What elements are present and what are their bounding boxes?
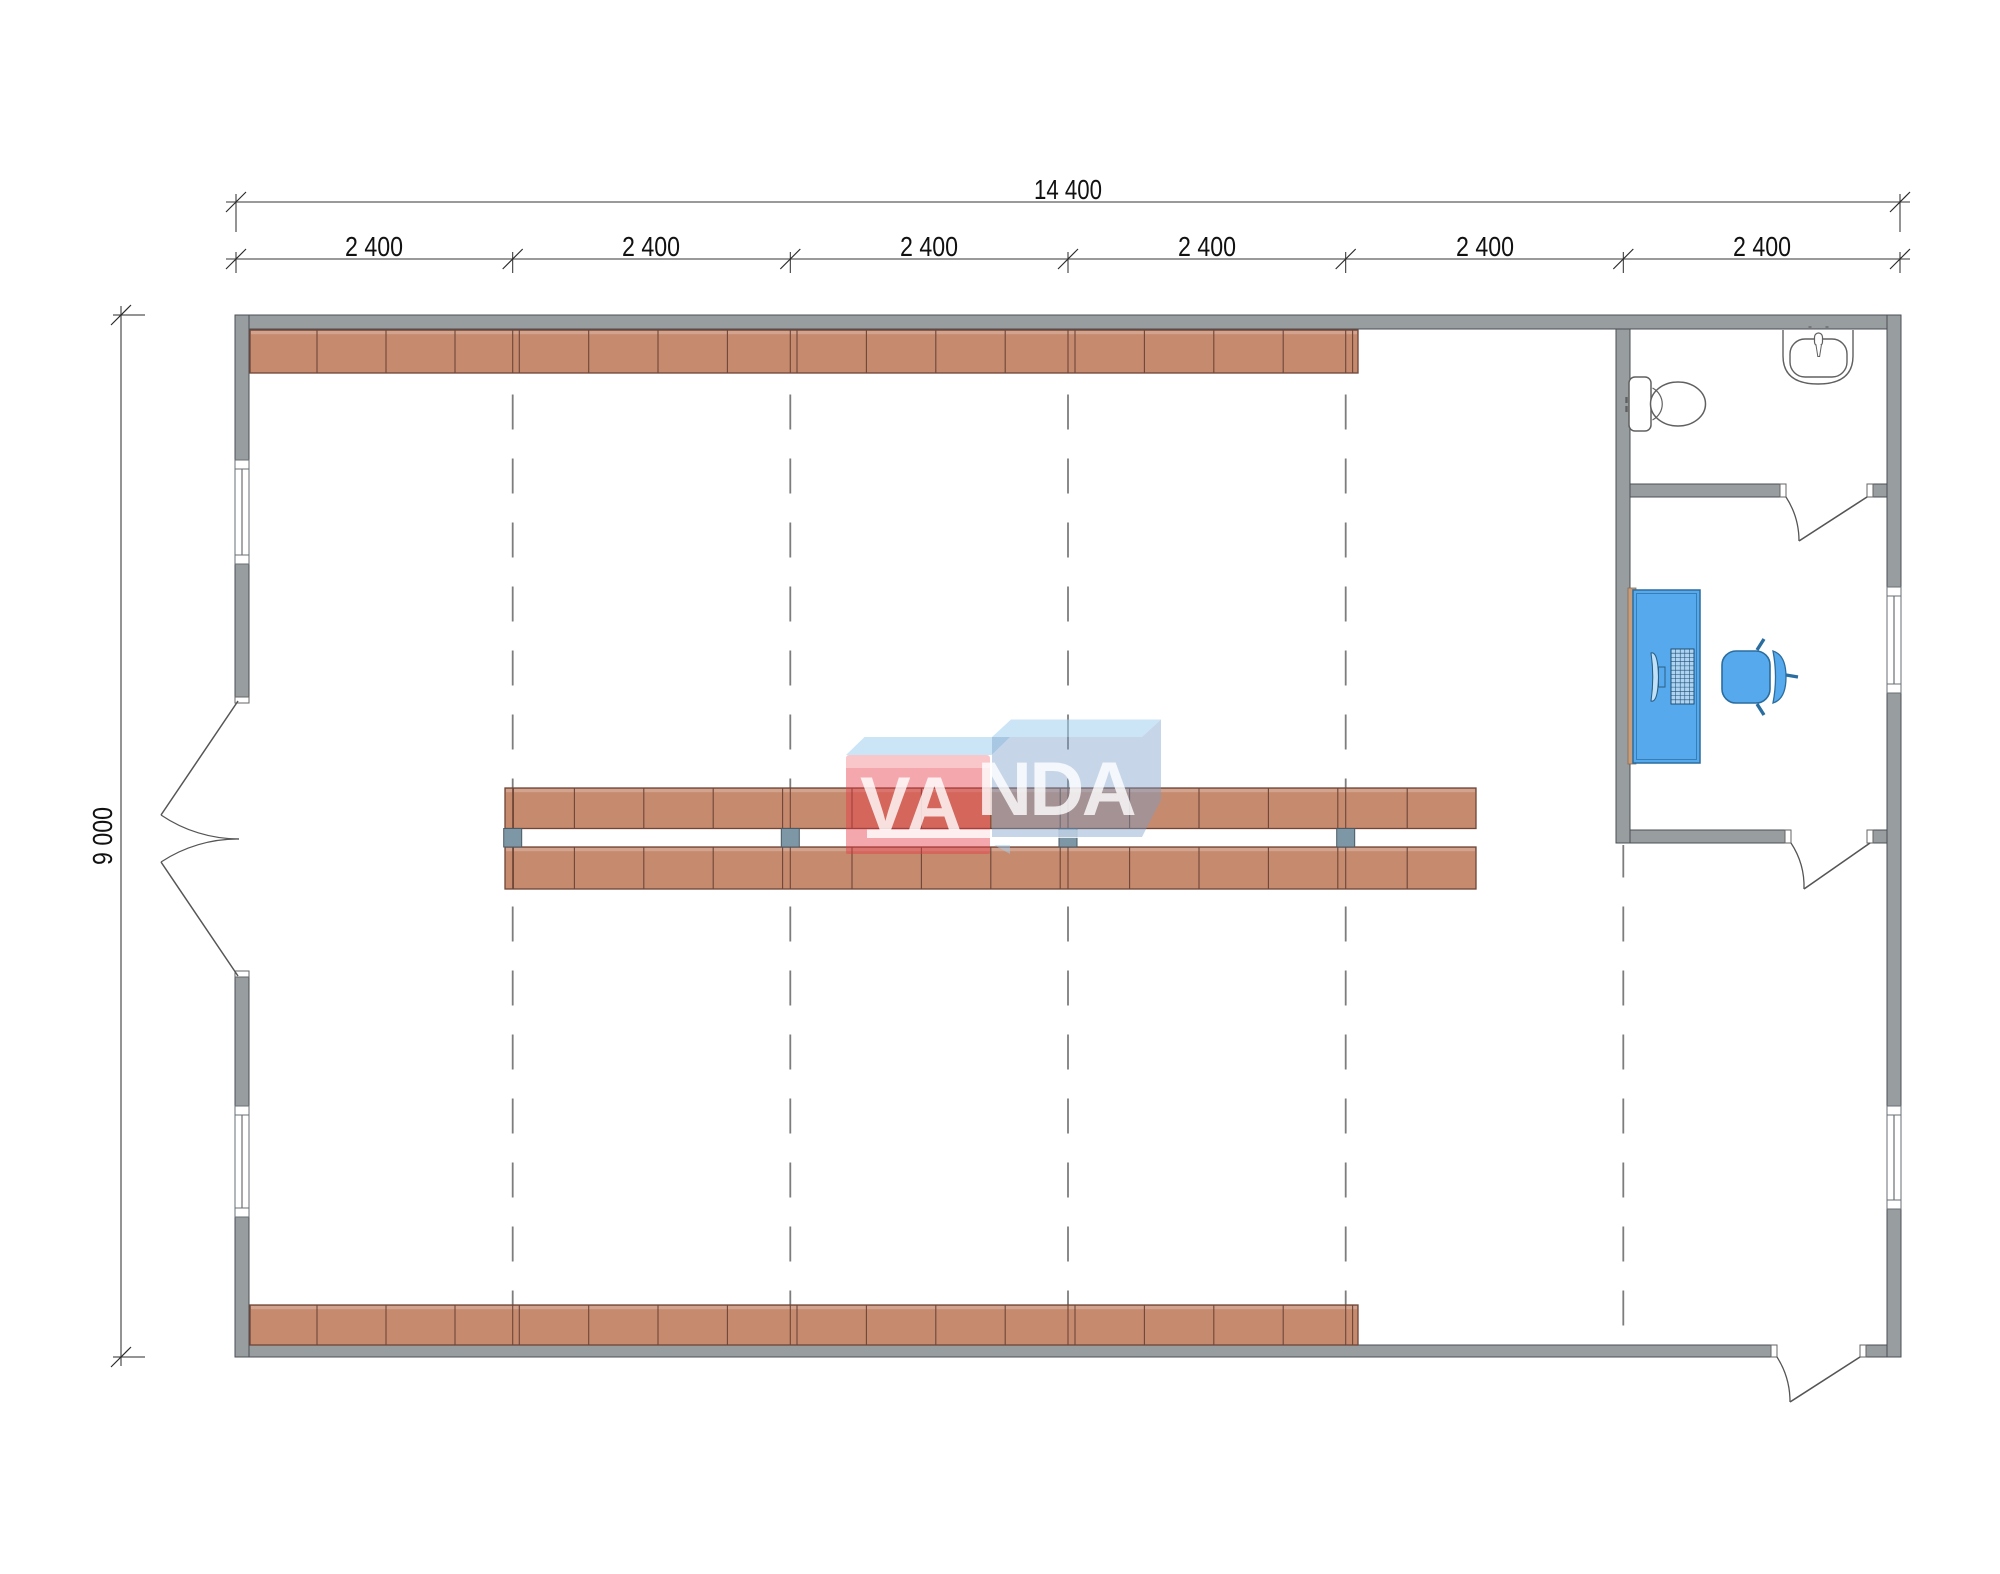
svg-text:2 400: 2 400: [1733, 231, 1791, 262]
svg-text:2 400: 2 400: [1456, 231, 1514, 262]
svg-text:VA: VA: [860, 762, 964, 847]
svg-text:2 400: 2 400: [622, 231, 680, 262]
svg-text:2 400: 2 400: [900, 231, 958, 262]
svg-text:2 400: 2 400: [1178, 231, 1236, 262]
svg-text:2 400: 2 400: [345, 231, 403, 262]
svg-text:9 000: 9 000: [87, 807, 118, 865]
svg-text:14 400: 14 400: [1034, 174, 1102, 205]
svg-text:NDA: NDA: [977, 747, 1135, 832]
